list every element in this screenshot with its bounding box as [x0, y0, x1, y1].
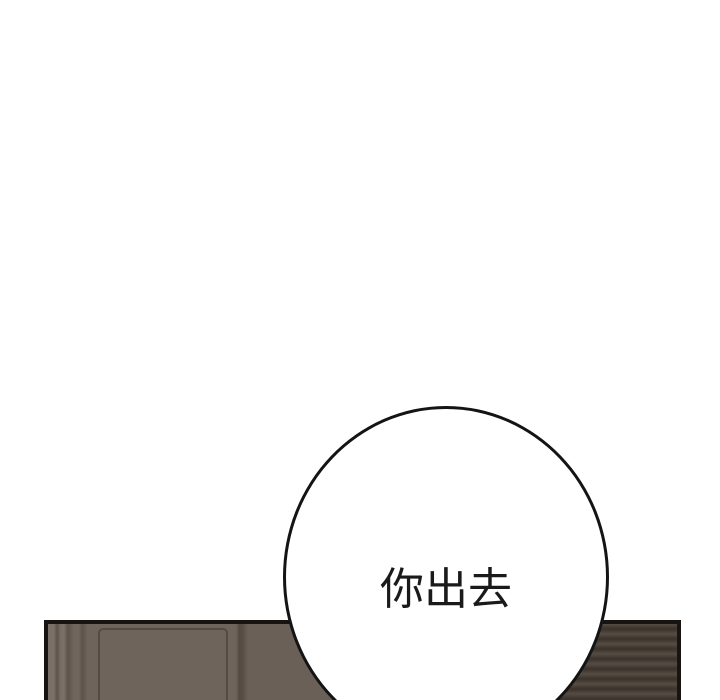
- speech-bubble: 你出去: [283, 406, 609, 700]
- speech-bubble-text: 你出去: [286, 567, 606, 613]
- door-inset-outline: [98, 628, 228, 700]
- comic-panel: 你出去: [0, 0, 720, 700]
